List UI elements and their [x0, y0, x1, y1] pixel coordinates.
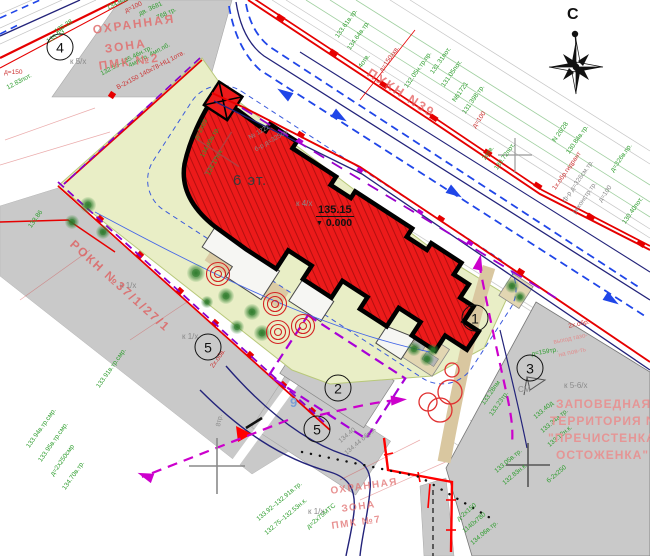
tree-symbol	[84, 201, 91, 208]
tree-symbol	[517, 294, 522, 299]
tree-symbol	[424, 356, 430, 362]
tree-symbol	[192, 269, 200, 277]
site-plan-drawing	[0, 0, 650, 556]
tree-symbol	[204, 299, 209, 304]
tree-symbol	[248, 308, 255, 315]
tree-symbol	[509, 283, 515, 289]
tree-symbol	[100, 229, 106, 235]
tree-symbol	[222, 292, 229, 299]
tree-symbol	[69, 219, 75, 225]
tree-symbol	[234, 324, 240, 330]
tree-symbol	[430, 347, 435, 352]
tree-symbol	[258, 329, 265, 336]
survey-cross	[498, 138, 532, 172]
tree-symbol	[411, 346, 417, 352]
compass-rose	[549, 31, 603, 94]
site-plan: 135.38135.93134.93вд=100дв. 3681768 тр.1…	[0, 0, 650, 556]
